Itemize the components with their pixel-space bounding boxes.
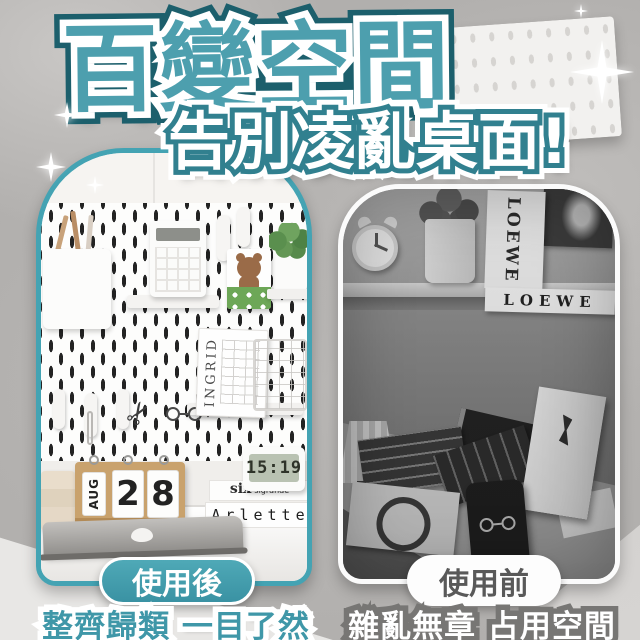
calculator-keys — [155, 247, 201, 292]
after-photo-panel: ✂ INGRID AUG 2 8 15:19 — [36, 148, 312, 586]
after-caption: 整齊歸類 一目了然 整齊歸類 一目了然 — [30, 601, 322, 640]
before-photo-panel: LOEWE LOEWE — [338, 184, 620, 584]
book-spine-text: LOEWE — [500, 197, 523, 286]
plant-leaves — [269, 223, 311, 259]
peg-hook — [237, 207, 250, 247]
calendar-ring — [123, 455, 133, 465]
magazine — [346, 482, 460, 557]
ad-banner: ✂ INGRID AUG 2 8 15:19 — [0, 0, 640, 640]
calculator-screen — [156, 228, 200, 241]
before-caption: 雜亂無章 占用空間 雜亂無章 占用空間 — [332, 601, 632, 640]
wire-basket — [253, 339, 307, 411]
calendar-month: AUG — [87, 478, 101, 510]
calendar-day-card: 8 — [147, 470, 179, 518]
laptop — [42, 516, 243, 557]
loewe-book-standing: LOEWE — [484, 190, 545, 290]
loewe-book-flat: LOEWE — [485, 287, 616, 314]
bear-memo-pad — [227, 249, 271, 309]
digital-clock: 15:19 — [243, 447, 305, 491]
before-caption-text: 雜亂無章 占用空間 — [332, 601, 632, 640]
magazine-portrait-cover — [542, 188, 614, 248]
calendar-ring — [159, 455, 169, 465]
calendar-day-card: 2 — [112, 470, 144, 518]
calendar-ring — [89, 455, 99, 465]
before-badge: 使用前 — [407, 555, 561, 606]
peg-hook — [53, 389, 65, 429]
after-badge: 使用後 — [99, 557, 255, 605]
after-photo: ✂ INGRID AUG 2 8 15:19 — [41, 153, 307, 581]
before-photo: LOEWE LOEWE — [343, 189, 615, 579]
alarm-clock — [352, 225, 398, 271]
memo-grass-pattern — [227, 287, 271, 309]
subtitle: 告別凌亂桌面! 告別凌亂桌面! 告別凌亂桌面! — [128, 106, 608, 177]
pen-cup — [43, 249, 111, 329]
paper-clips — [87, 411, 93, 445]
plant-pot — [425, 219, 475, 283]
after-caption-text: 整齊歸類 一目了然 — [30, 601, 322, 640]
sparkle-icon — [574, 4, 588, 18]
subtitle-text: 告別凌亂桌面! — [128, 106, 608, 177]
calculator — [150, 221, 206, 297]
calendar-month-card: AUG — [82, 472, 106, 516]
clock-time: 15:19 — [249, 454, 299, 482]
book-spine-text: INGRID — [203, 337, 220, 407]
peg-rail — [267, 289, 311, 299]
